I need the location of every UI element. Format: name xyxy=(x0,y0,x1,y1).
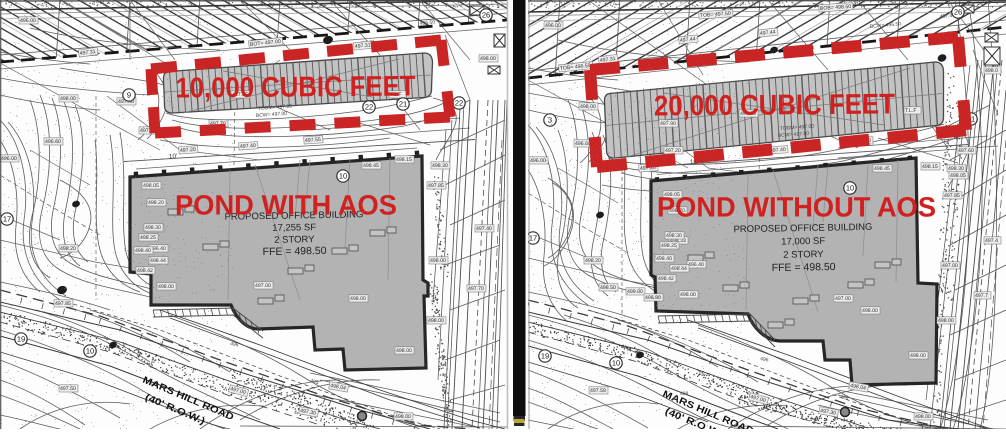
svg-text:498.15: 498.15 xyxy=(396,157,412,163)
svg-text:497.20: 497.20 xyxy=(180,147,196,154)
svg-text:26: 26 xyxy=(482,11,490,20)
svg-text:498.00: 498.00 xyxy=(428,318,444,324)
svg-text:498.80: 498.80 xyxy=(645,295,661,301)
svg-text:498.45: 498.45 xyxy=(874,166,890,172)
svg-text:497.85: 497.85 xyxy=(55,301,71,307)
svg-text:20,000 CUBIC FEET: 20,000 CUBIC FEET xyxy=(654,88,896,122)
svg-text:10: 10 xyxy=(86,347,94,356)
svg-text:498.00: 498.00 xyxy=(480,56,496,62)
svg-text:10: 10 xyxy=(339,172,347,181)
svg-text:POND WITHOUT AOS: POND WITHOUT AOS xyxy=(657,191,936,222)
svg-text:498.44: 498.44 xyxy=(671,266,687,272)
svg-text:498.40: 498.40 xyxy=(656,256,672,262)
svg-text:498.42: 498.42 xyxy=(658,276,674,282)
svg-text:498.20: 498.20 xyxy=(585,258,601,264)
svg-text:498.15: 498.15 xyxy=(922,164,938,170)
svg-text:497.60: 497.60 xyxy=(958,148,974,154)
svg-text:498.05: 498.05 xyxy=(950,173,966,179)
svg-text:T.L.F: T.L.F xyxy=(905,108,917,114)
svg-text:498.45: 498.45 xyxy=(363,163,379,169)
svg-text:498.30: 498.30 xyxy=(666,233,682,239)
svg-text:496.60: 496.60 xyxy=(45,139,61,145)
svg-text:498.05: 498.05 xyxy=(143,183,159,189)
svg-text:2 STORY: 2 STORY xyxy=(783,249,824,261)
svg-text:496.60: 496.60 xyxy=(575,141,591,147)
svg-text:496.40: 496.40 xyxy=(688,262,704,268)
svg-text:10: 10 xyxy=(612,359,620,368)
svg-text:497.20: 497.20 xyxy=(665,148,681,154)
svg-text:497.00: 497.00 xyxy=(255,283,271,289)
svg-text:498.50: 498.50 xyxy=(600,285,616,291)
svg-text:498.40: 498.40 xyxy=(135,248,151,254)
svg-text:498.00: 498.00 xyxy=(60,96,76,102)
svg-text:498.0: 498.0 xyxy=(985,68,998,74)
svg-text:10,000 CUBIC FEET: 10,000 CUBIC FEET xyxy=(175,70,416,104)
svg-text:17,000 SF: 17,000 SF xyxy=(781,236,825,248)
svg-text:498.20: 498.20 xyxy=(60,246,76,252)
svg-text:498.00: 498.00 xyxy=(938,318,954,324)
svg-text:FFE = 498.50: FFE = 498.50 xyxy=(772,261,836,274)
svg-text:498.00: 498.00 xyxy=(158,284,174,290)
svg-text:POND WITH AOS: POND WITH AOS xyxy=(175,189,397,220)
svg-text:497.00: 497.00 xyxy=(835,296,851,302)
svg-text:26: 26 xyxy=(954,8,962,17)
svg-text:497.70: 497.70 xyxy=(468,286,484,292)
svg-text:497.85: 497.85 xyxy=(428,183,444,189)
svg-text:498.30: 498.30 xyxy=(145,225,161,231)
svg-text:498.44: 498.44 xyxy=(150,258,166,264)
svg-text:2 STORY: 2 STORY xyxy=(274,234,315,246)
svg-text:498.00: 498.00 xyxy=(580,104,596,110)
svg-text:498.20: 498.20 xyxy=(148,200,164,206)
svg-text:496.00: 496.00 xyxy=(530,158,546,164)
svg-text:497.40: 497.40 xyxy=(476,226,492,232)
svg-text:498.00: 498.00 xyxy=(395,414,411,420)
svg-text:22: 22 xyxy=(455,99,463,108)
svg-text:497.55: 497.55 xyxy=(305,137,321,144)
svg-text:498.00: 498.00 xyxy=(430,258,446,264)
svg-text:498.00: 498.00 xyxy=(915,414,931,420)
svg-text:498.00: 498.00 xyxy=(862,308,878,314)
svg-text:497.00: 497.00 xyxy=(942,263,958,269)
svg-text:498.25: 498.25 xyxy=(661,243,677,249)
svg-text:497.40: 497.40 xyxy=(240,143,256,150)
svg-text:9: 9 xyxy=(127,91,131,100)
svg-text:496.00: 496.00 xyxy=(1,156,17,162)
svg-text:498.30: 498.30 xyxy=(432,163,448,169)
svg-text:498.00: 498.00 xyxy=(350,296,366,302)
svg-text:FFE = 498.50: FFE = 498.50 xyxy=(263,245,327,258)
svg-text:497.7: 497.7 xyxy=(975,293,988,299)
svg-text:499.00: 499.00 xyxy=(627,289,643,295)
svg-text:10': 10' xyxy=(169,153,178,161)
svg-text:3: 3 xyxy=(548,116,552,125)
svg-text:498.00: 498.00 xyxy=(910,353,926,359)
svg-text:496.00: 496.00 xyxy=(545,23,561,29)
svg-text:498.42: 498.42 xyxy=(137,268,153,274)
svg-text:497.4: 497.4 xyxy=(985,238,998,244)
svg-text:19: 19 xyxy=(17,335,25,344)
svg-text:497.50: 497.50 xyxy=(590,388,606,394)
svg-text:498.25: 498.25 xyxy=(140,235,156,241)
svg-text:17: 17 xyxy=(529,234,537,243)
svg-text:497.85: 497.85 xyxy=(944,193,960,199)
svg-text:498.00: 498.00 xyxy=(396,348,412,354)
svg-text:22: 22 xyxy=(365,103,373,112)
svg-text:496.00: 496.00 xyxy=(20,18,36,24)
svg-text:497.50: 497.50 xyxy=(60,386,76,392)
svg-text:17,255 SF: 17,255 SF xyxy=(272,222,316,234)
svg-text:498.30: 498.30 xyxy=(948,166,964,172)
